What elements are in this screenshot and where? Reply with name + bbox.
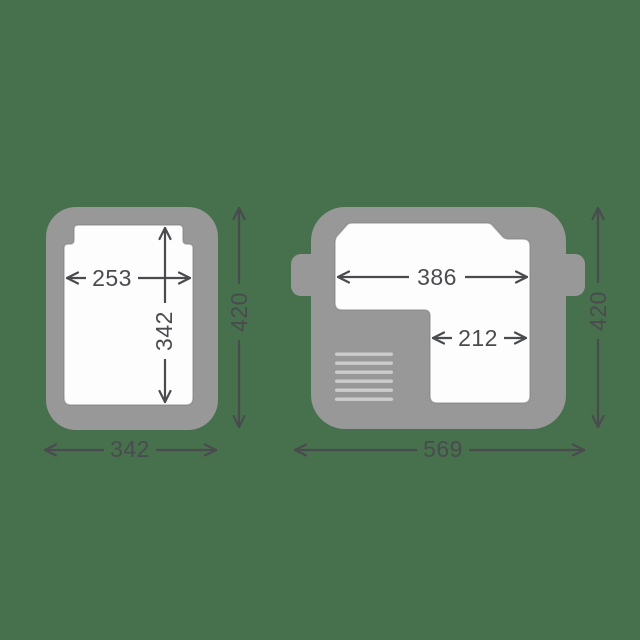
dimension-diagram: 253 342 420 34 (0, 0, 640, 640)
vent-bar (335, 380, 393, 383)
dim-label-outer-width: 342 (110, 436, 150, 462)
dim-label-inner-width: 253 (92, 265, 132, 291)
dimension-left-outer-width: 342 (45, 436, 216, 463)
dimension-left-outer-depth: 420 (226, 208, 252, 427)
vent-bar (335, 371, 393, 374)
dim-label-inner-depth: 342 (151, 311, 177, 351)
dim-label-outer-depth: 420 (585, 291, 611, 331)
dim-label-outer-width: 569 (423, 436, 463, 462)
vent-bar (335, 362, 393, 365)
left-unit-diagram: 253 342 420 34 (45, 207, 252, 463)
right-unit-diagram: 386 212 420 569 (291, 207, 611, 463)
diagram-svg: 253 342 420 34 (0, 0, 640, 640)
vent-bar (335, 398, 393, 401)
dimension-right-outer-depth: 420 (585, 208, 611, 427)
dimension-right-outer-width: 569 (295, 436, 584, 463)
dim-label-outer-depth: 420 (226, 292, 252, 332)
vent-bar (335, 353, 393, 356)
dim-label-side-width: 212 (458, 325, 498, 351)
dim-label-main-width: 386 (417, 264, 457, 290)
vent-bar (335, 389, 393, 392)
